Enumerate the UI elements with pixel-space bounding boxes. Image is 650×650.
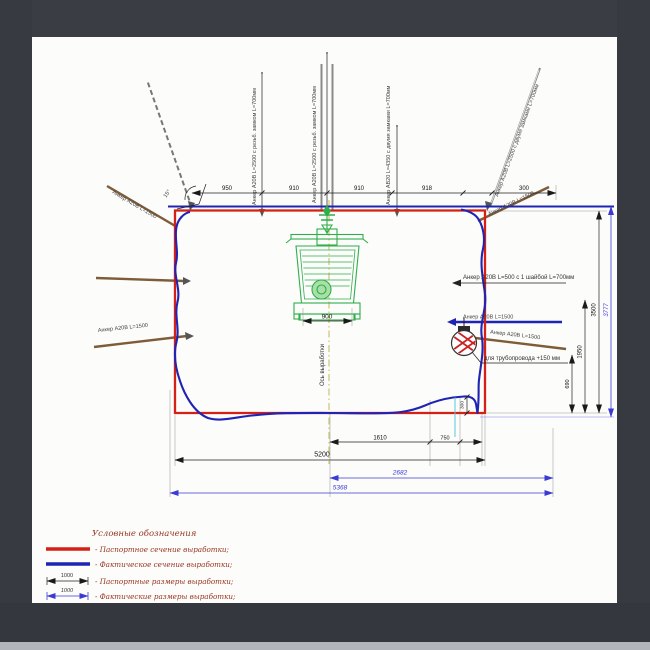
bezel-bottom-strip <box>0 642 650 650</box>
legend-title: Условные обозначения <box>92 528 197 539</box>
roof-anchor-1-label: Анкер А20В L=2500 с резьб. замком L=700м… <box>252 88 258 205</box>
dim-750: 750 <box>440 436 449 442</box>
dim-1950: 1950 <box>578 345 584 359</box>
legend-item-3: - Паспортные размеры выработки; <box>95 577 234 586</box>
dim-top-4: 918 <box>422 186 433 192</box>
bezel-left <box>0 0 32 642</box>
right-wall-anchor-label: Анкер А20В L=500 с 1 шайбой L=700мм <box>463 274 574 281</box>
legend-item-1: - Паспортное сечение выработки; <box>95 545 230 554</box>
dim-top-1: 950 <box>222 186 233 192</box>
legend-sample-passport-dim-value: 1000 <box>61 573 73 579</box>
dim-5368: 5368 <box>333 485 348 492</box>
axis-label: Ось выработки <box>320 344 326 386</box>
bezel-top <box>0 0 650 37</box>
bezel-right <box>617 0 650 642</box>
dim-3500: 3500 <box>592 303 598 317</box>
dim-690: 690 <box>565 379 571 388</box>
bezel-bottom <box>0 603 650 642</box>
excavation-cross-section-drawing: Ось выработки <box>0 0 650 650</box>
right-anchor-blue-label: Анкер А20В L=1500 <box>463 315 513 321</box>
dim-top-2: 910 <box>289 186 300 192</box>
dim-top-300: 300 <box>519 186 530 192</box>
legend-item-4: - Фактические размеры выработки; <box>95 592 236 601</box>
dim-1610: 1610 <box>373 436 387 442</box>
dim-3777: 3777 <box>604 303 610 317</box>
dim-2682: 2682 <box>392 470 408 477</box>
roof-anchor-2-label: Анкер А20В L=2500 с резьб. замком L=700м… <box>312 86 318 203</box>
pipe-note-label: для трубопровода +150 мм <box>484 356 560 362</box>
dim-top-3: 910 <box>354 186 365 192</box>
dim-5200: 5200 <box>314 452 330 459</box>
legend-item-2: - Фактическое сечение выработки; <box>95 560 233 569</box>
roof-anchor-3-label: Анкер АВ20 L=4350 с двумя замками L=700м… <box>386 85 392 205</box>
dim-900: 900 <box>322 314 333 321</box>
dim-step-300: 300 <box>460 401 466 409</box>
legend-sample-actual-dim-value: 1000 <box>61 588 74 594</box>
